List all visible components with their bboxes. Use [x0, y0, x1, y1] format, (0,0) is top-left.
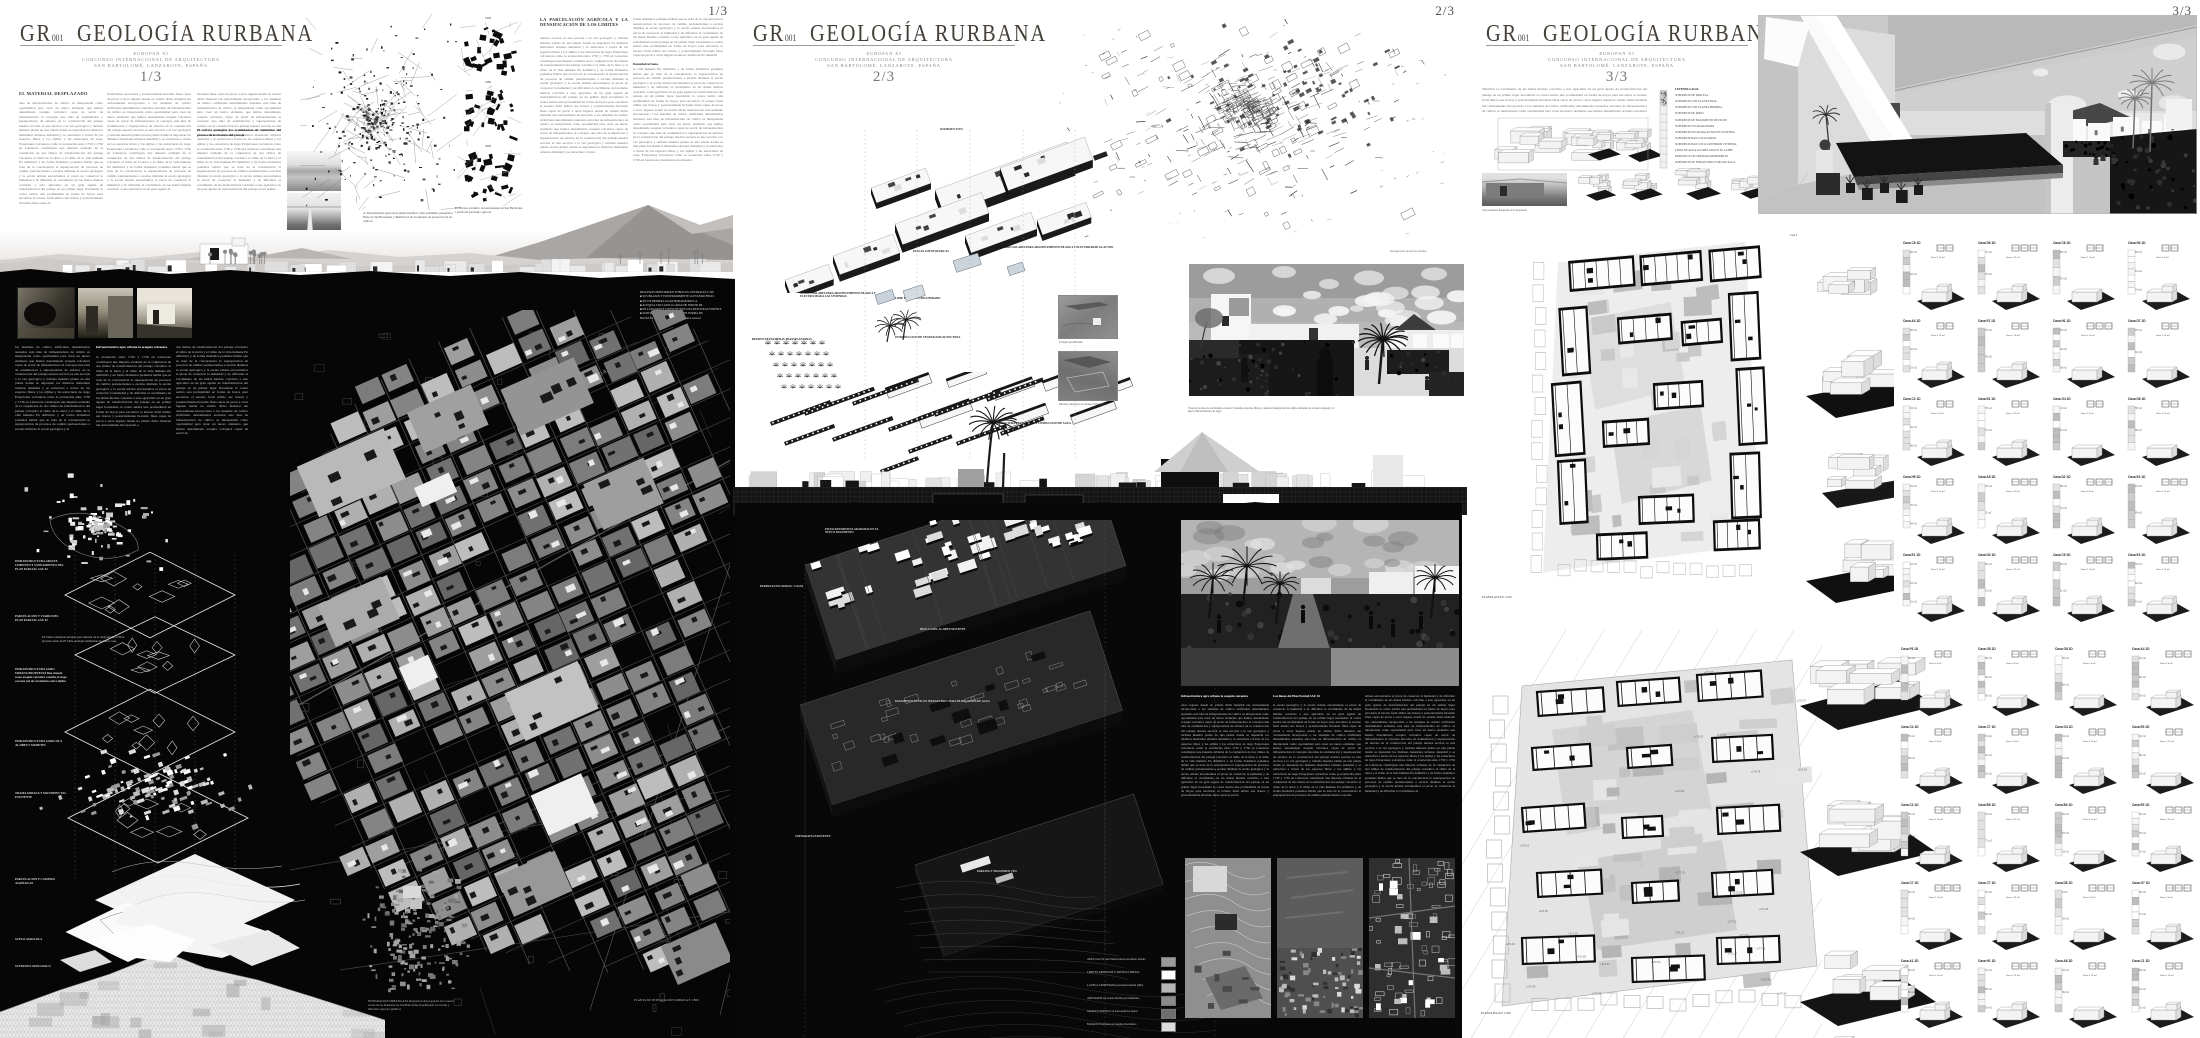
svg-text:Casa C4 1D: Casa C4 1D	[1901, 725, 1919, 729]
svg-text:Dorm 1 9 m2: Dorm 1 9 m2	[2160, 662, 2173, 665]
svg-text:Casa G8 1D: Casa G8 1D	[1978, 647, 1996, 651]
svg-text:Casa H4 1D: Casa H4 1D	[2128, 241, 2146, 245]
svg-text:+271.53: +271.53	[1716, 733, 1726, 737]
svg-text:Casa A4 1D: Casa A4 1D	[1903, 319, 1921, 323]
svg-text:+277.78: +277.78	[1675, 870, 1685, 874]
svg-text:89 m2: 89 m2	[2062, 991, 2069, 994]
svg-text:Dorm 1 13 m2: Dorm 1 13 m2	[1929, 896, 1944, 899]
svg-text:49 m2: 49 m2	[1908, 891, 1915, 894]
svg-text:+273.26: +273.26	[1733, 890, 1743, 894]
svg-text:25 m2: 25 m2	[2135, 329, 2142, 332]
svg-text:Dorm 1 15 m2: Dorm 1 15 m2	[2156, 568, 2171, 571]
svg-text:Casa F2 1D: Casa F2 1D	[1978, 319, 1996, 323]
svg-text:55 m2: 55 m2	[1908, 813, 1915, 816]
svg-text:55 m2: 55 m2	[2139, 891, 2146, 894]
svg-text:22 m2: 22 m2	[1910, 273, 1917, 276]
svg-text:Dorm 1 13 m2: Dorm 1 13 m2	[2160, 974, 2175, 977]
svg-text:87 m2: 87 m2	[2060, 277, 2067, 280]
svg-text:Dorm 1 15 m2: Dorm 1 15 m2	[1931, 568, 1946, 571]
svg-text:27 m2: 27 m2	[2139, 913, 2146, 916]
svg-text:23 m2: 23 m2	[1985, 589, 1992, 592]
svg-text:+271.20: +271.20	[1728, 952, 1738, 956]
svg-text:19 m2: 19 m2	[2139, 657, 2146, 660]
svg-text:Dorm 1 15 m2: Dorm 1 15 m2	[1931, 490, 1946, 493]
svg-text:Casa C6 1D: Casa C6 1D	[2053, 241, 2071, 245]
svg-text:51 m2: 51 m2	[2135, 270, 2142, 273]
svg-text:Dorm 1 12 m2: Dorm 1 12 m2	[2160, 818, 2175, 821]
svg-text:Casa C7 1D: Casa C7 1D	[1978, 881, 1996, 885]
svg-text:29 m2: 29 m2	[2062, 969, 2069, 972]
svg-text:+279.36: +279.36	[1760, 977, 1770, 981]
svg-text:46 m2: 46 m2	[1910, 426, 1917, 429]
svg-text:Casa E4 1D: Casa E4 1D	[2128, 475, 2146, 479]
svg-text:24 m2: 24 m2	[2135, 289, 2142, 292]
svg-text:28 m2: 28 m2	[2062, 813, 2069, 816]
svg-text:+278.53: +278.53	[1694, 734, 1704, 738]
svg-text:38 m2: 38 m2	[1985, 657, 1992, 660]
svg-text:Dorm 1 10 m2: Dorm 1 10 m2	[2081, 256, 2096, 259]
svg-text:Dorm 1 14 m2: Dorm 1 14 m2	[2006, 896, 2021, 899]
svg-text:Casa G4 1D: Casa G4 1D	[2053, 397, 2071, 401]
svg-text:Casa F6 1D: Casa F6 1D	[1901, 647, 1919, 651]
svg-text:52 m2: 52 m2	[1908, 657, 1915, 660]
svg-text:+278.22: +278.22	[1520, 844, 1530, 848]
svg-text:Dorm 1 9 m2: Dorm 1 9 m2	[2160, 896, 2173, 899]
svg-text:Casa D6 1D: Casa D6 1D	[2128, 397, 2146, 401]
svg-text:+278.60: +278.60	[1651, 960, 1661, 964]
svg-text:32 m2: 32 m2	[1985, 773, 1992, 776]
svg-text:Casa C3 1D: Casa C3 1D	[1901, 803, 1919, 807]
svg-text:Casa H1 1D: Casa H1 1D	[2053, 319, 2071, 323]
svg-text:81 m2: 81 m2	[1910, 601, 1917, 604]
svg-text:Dorm 1 15 m2: Dorm 1 15 m2	[2006, 256, 2021, 259]
svg-text:88 m2: 88 m2	[2139, 754, 2146, 757]
svg-text:Casa D6 1D: Casa D6 1D	[1978, 241, 1996, 245]
svg-text:40 m2: 40 m2	[2135, 351, 2142, 354]
svg-text:72 m2: 72 m2	[1985, 251, 1992, 254]
svg-text:75 m2: 75 m2	[1985, 329, 1992, 332]
svg-text:39 m2: 39 m2	[1908, 757, 1915, 760]
svg-text:Casa E5 1D: Casa E5 1D	[2132, 803, 2150, 807]
svg-text:Casa E1 1D: Casa E1 1D	[1903, 553, 1921, 557]
svg-text:52 m2: 52 m2	[2139, 1007, 2146, 1010]
svg-text:Dorm 1 10 m2: Dorm 1 10 m2	[2006, 490, 2021, 493]
svg-text:Dorm 1 12 m2: Dorm 1 12 m2	[2083, 818, 2098, 821]
svg-text:20 m2: 20 m2	[2139, 773, 2146, 776]
svg-text:Casa D3 1D: Casa D3 1D	[1978, 553, 1996, 557]
svg-text:Dorm 1 13 m2: Dorm 1 13 m2	[2006, 568, 2021, 571]
svg-text:Dorm 1 8 m2: Dorm 1 8 m2	[2156, 256, 2169, 259]
svg-text:Casa H1 1D: Casa H1 1D	[1978, 959, 1996, 963]
svg-text:Casa G7 1D: Casa G7 1D	[2132, 881, 2150, 885]
svg-text:74 m2: 74 m2	[2060, 507, 2067, 510]
svg-text:28 m2: 28 m2	[1985, 355, 1992, 358]
svg-text:11 m2: 11 m2	[2060, 589, 2067, 592]
svg-text:+275.22: +275.22	[1592, 991, 1602, 995]
svg-text:61 m2: 61 m2	[2060, 429, 2067, 432]
svg-text:85 m2: 85 m2	[2135, 251, 2142, 254]
svg-text:32 m2: 32 m2	[1985, 891, 1992, 894]
svg-text:Dorm 1 11 m2: Dorm 1 11 m2	[2081, 334, 2095, 337]
svg-text:+274.37: +274.37	[1600, 962, 1610, 966]
svg-text:65 m2: 65 m2	[2060, 367, 2067, 370]
svg-text:78 m2: 78 m2	[1985, 407, 1992, 410]
svg-text:+277.11: +277.11	[1727, 920, 1737, 924]
svg-text:Casa G8 1D: Casa G8 1D	[2055, 647, 2073, 651]
svg-text:11 m2: 11 m2	[1985, 511, 1992, 514]
svg-text:Dorm 1 8 m2: Dorm 1 8 m2	[1929, 740, 1942, 743]
svg-text:43 m2: 43 m2	[2060, 407, 2067, 410]
svg-text:78 m2: 78 m2	[1985, 485, 1992, 488]
svg-text:Casa C1 1D: Casa C1 1D	[2132, 959, 2150, 963]
svg-text:+270.83: +270.83	[1538, 909, 1548, 913]
svg-text:Dorm 1 13 m2: Dorm 1 13 m2	[1929, 818, 1944, 821]
svg-text:Casa C5 1D: Casa C5 1D	[2053, 553, 2071, 557]
svg-text:34 m2: 34 m2	[2062, 735, 2069, 738]
svg-text:85 m2: 85 m2	[2060, 251, 2067, 254]
svg-text:61 m2: 61 m2	[1910, 485, 1917, 488]
svg-text:Dorm 1 8 m2: Dorm 1 8 m2	[2083, 896, 2096, 899]
svg-text:39 m2: 39 m2	[1985, 676, 1992, 679]
svg-text:60 m2: 60 m2	[2139, 695, 2146, 698]
svg-text:Casa B5 1D: Casa B5 1D	[1978, 803, 1996, 807]
svg-text:86 m2: 86 m2	[2139, 969, 2146, 972]
svg-text:88 m2: 88 m2	[2135, 429, 2142, 432]
svg-text:+279.90: +279.90	[1777, 992, 1787, 996]
svg-text:Casa D7 1D: Casa D7 1D	[2128, 319, 2146, 323]
svg-text:59 m2: 59 m2	[1985, 563, 1992, 566]
svg-text:80 m2: 80 m2	[2139, 676, 2146, 679]
svg-text:33 m2: 33 m2	[2062, 851, 2069, 854]
svg-text:75 m2: 75 m2	[1910, 504, 1917, 507]
svg-text:Dorm 1 9 m2: Dorm 1 9 m2	[1929, 662, 1942, 665]
svg-text:43 m2: 43 m2	[1910, 582, 1917, 585]
svg-text:50 m2: 50 m2	[1985, 913, 1992, 916]
svg-text:34 m2: 34 m2	[2062, 917, 2069, 920]
svg-text:Casa C8 1D: Casa C8 1D	[1903, 241, 1921, 245]
svg-text:43 m2: 43 m2	[2135, 601, 2142, 604]
svg-text:+275.83: +275.83	[1526, 984, 1536, 988]
svg-text:74 m2: 74 m2	[1985, 735, 1992, 738]
svg-text:65 m2: 65 m2	[1908, 735, 1915, 738]
svg-text:Casa D2 1D: Casa D2 1D	[2053, 475, 2071, 479]
svg-text:Dorm 1 9 m2: Dorm 1 9 m2	[2081, 490, 2094, 493]
svg-text:Dorm 1 8 m2: Dorm 1 8 m2	[2083, 662, 2096, 665]
svg-text:53 m2: 53 m2	[2062, 832, 2069, 835]
svg-text:Dorm 1 12 m2: Dorm 1 12 m2	[2006, 974, 2021, 977]
svg-text:66 m2: 66 m2	[1908, 991, 1915, 994]
svg-text:78 m2: 78 m2	[2139, 832, 2146, 835]
svg-text:Dorm 1 15 m2: Dorm 1 15 m2	[2160, 740, 2175, 743]
svg-text:Dorm 1 12 m2: Dorm 1 12 m2	[2006, 818, 2021, 821]
svg-text:Casa D8 1D: Casa D8 1D	[2055, 881, 2073, 885]
svg-text:58 m2: 58 m2	[1910, 251, 1917, 254]
svg-text:Casa A4 1D: Casa A4 1D	[2132, 647, 2150, 651]
svg-text:Dorm 1 9 m2: Dorm 1 9 m2	[1931, 412, 1944, 415]
svg-text:Casa G4 1D: Casa G4 1D	[2055, 725, 2073, 729]
svg-text:88 m2: 88 m2	[2060, 485, 2067, 488]
svg-text:63 m2: 63 m2	[2139, 813, 2146, 816]
svg-text:24 m2: 24 m2	[1910, 563, 1917, 566]
svg-text:Casa H5 1D: Casa H5 1D	[1903, 475, 1921, 479]
svg-text:+273.64: +273.64	[1739, 933, 1749, 937]
svg-text:Dorm 1 12 m2: Dorm 1 12 m2	[2156, 334, 2171, 337]
svg-text:Dorm 1 15 m2: Dorm 1 15 m2	[1931, 256, 1946, 259]
svg-text:65 m2: 65 m2	[1985, 988, 1992, 991]
svg-text:58 m2: 58 m2	[2135, 407, 2142, 410]
svg-text:12 m2: 12 m2	[2062, 757, 2069, 760]
svg-text:89 m2: 89 m2	[2135, 511, 2142, 514]
svg-text:58 m2: 58 m2	[1910, 329, 1917, 332]
svg-text:+279.94: +279.94	[1505, 942, 1515, 946]
svg-text:Dorm 1 10 m2: Dorm 1 10 m2	[2156, 412, 2171, 415]
svg-text:Dorm 1 8 m2: Dorm 1 8 m2	[2006, 662, 2019, 665]
svg-text:Dorm 1 11 m2: Dorm 1 11 m2	[2006, 412, 2020, 415]
svg-text:Casa A8 1D: Casa A8 1D	[2055, 959, 2073, 963]
svg-text:23 m2: 23 m2	[1910, 367, 1917, 370]
svg-text:Casa A5 1D: Casa A5 1D	[1978, 475, 1996, 479]
svg-text:16 m2: 16 m2	[2139, 988, 2146, 991]
svg-text:+271.25: +271.25	[1704, 670, 1714, 674]
svg-text:Casa A1 1D: Casa A1 1D	[1901, 959, 1919, 963]
svg-text:+272.83: +272.83	[1577, 955, 1587, 959]
svg-text:62 m2: 62 m2	[2135, 582, 2142, 585]
svg-text:+278.78: +278.78	[1751, 769, 1761, 773]
svg-text:Dorm 1 14 m2: Dorm 1 14 m2	[2083, 974, 2098, 977]
svg-text:71 m2: 71 m2	[1985, 839, 1992, 842]
svg-text:Casa C7 1D: Casa C7 1D	[1901, 881, 1919, 885]
svg-text:44 m2: 44 m2	[1985, 273, 1992, 276]
svg-text:Casa E5 1D: Casa E5 1D	[2132, 725, 2150, 729]
svg-text:+270.46: +270.46	[1759, 907, 1769, 911]
svg-text:Dorm 1 13 m2: Dorm 1 13 m2	[1931, 334, 1946, 337]
svg-text:Casa E4 1D: Casa E4 1D	[1978, 397, 1996, 401]
svg-text:36 m2: 36 m2	[1908, 969, 1915, 972]
svg-text:58 m2: 58 m2	[2062, 683, 2069, 686]
svg-text:33 m2: 33 m2	[1985, 813, 1992, 816]
svg-text:68 m2: 68 m2	[2060, 329, 2067, 332]
svg-text:65 m2: 65 m2	[1985, 695, 1992, 698]
svg-text:Dorm 1 13 m2: Dorm 1 13 m2	[2083, 740, 2098, 743]
svg-text:50 m2: 50 m2	[1985, 1007, 1992, 1010]
svg-text:+277.69: +277.69	[1756, 946, 1766, 950]
svg-text:Dorm 1 10 m2: Dorm 1 10 m2	[2006, 334, 2021, 337]
svg-text:10 m2: 10 m2	[1910, 348, 1917, 351]
svg-text:Casa C2 1D: Casa C2 1D	[1903, 397, 1921, 401]
svg-text:43 m2: 43 m2	[1910, 407, 1917, 410]
svg-text:Dorm 1 11 m2: Dorm 1 11 m2	[1929, 974, 1943, 977]
svg-text:10 m2: 10 m2	[1985, 969, 1992, 972]
svg-text:56 m2: 56 m2	[2062, 657, 2069, 660]
svg-text:8 m2: 8 m2	[2062, 891, 2068, 894]
svg-text:+271.90: +271.90	[1568, 931, 1578, 935]
svg-text:82 m2: 82 m2	[1908, 683, 1915, 686]
svg-text:+271.11: +271.11	[1675, 931, 1685, 935]
svg-text:62 m2: 62 m2	[2139, 735, 2146, 738]
svg-text:Casa E3 1D: Casa E3 1D	[2128, 553, 2146, 557]
svg-text:37 m2: 37 m2	[2139, 851, 2146, 854]
svg-text:48 m2: 48 m2	[1910, 445, 1917, 448]
svg-text:Dorm 1 9 m2: Dorm 1 9 m2	[2081, 412, 2094, 415]
svg-text:64 m2: 64 m2	[1908, 917, 1915, 920]
svg-text:84 m2: 84 m2	[1910, 523, 1917, 526]
svg-text:Dorm 1 15 m2: Dorm 1 15 m2	[2156, 490, 2171, 493]
svg-text:+272.81: +272.81	[1675, 789, 1685, 793]
svg-text:Dorm 1 8 m2: Dorm 1 8 m2	[2006, 740, 2019, 743]
svg-text:63 m2: 63 m2	[1908, 835, 1915, 838]
svg-text:31 m2: 31 m2	[1985, 754, 1992, 757]
svg-text:78 m2: 78 m2	[2135, 563, 2142, 566]
svg-text:32 m2: 32 m2	[2060, 348, 2067, 351]
svg-text:45 m2: 45 m2	[2060, 563, 2067, 566]
svg-text:Casa C7 1D: Casa C7 1D	[1978, 725, 1996, 729]
svg-text:Dorm 1 13 m2: Dorm 1 13 m2	[2081, 568, 2096, 571]
svg-text:Casa B4 1D: Casa B4 1D	[2055, 803, 2073, 807]
svg-text:22 m2: 22 m2	[2135, 485, 2142, 488]
svg-text:72 m2: 72 m2	[1985, 429, 1992, 432]
